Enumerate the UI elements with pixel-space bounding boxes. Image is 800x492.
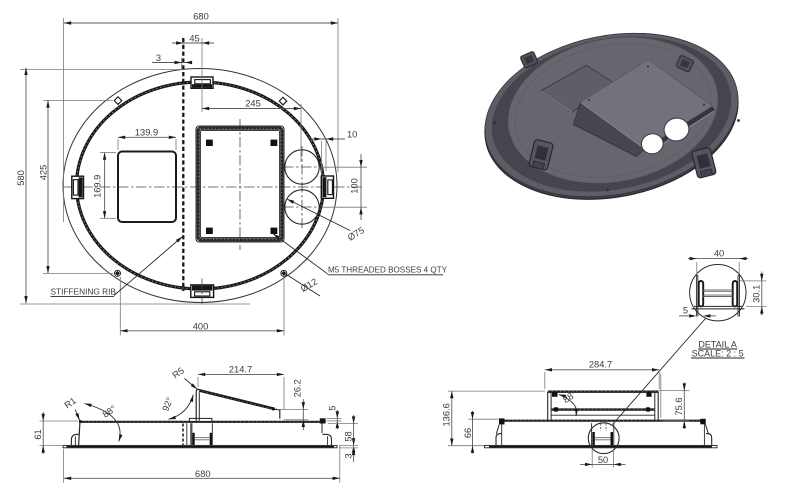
svg-text:40: 40 xyxy=(714,248,724,258)
svg-text:26.2: 26.2 xyxy=(293,379,303,397)
svg-text:SCALE: 2 : 5: SCALE: 2 : 5 xyxy=(692,348,744,358)
svg-text:50: 50 xyxy=(598,455,608,465)
svg-text:45: 45 xyxy=(189,33,199,43)
svg-text:680: 680 xyxy=(195,469,211,479)
svg-text:75.6: 75.6 xyxy=(674,397,684,415)
svg-text:169.9: 169.9 xyxy=(92,175,102,198)
svg-text:30.1: 30.1 xyxy=(752,285,762,303)
svg-text:5: 5 xyxy=(327,405,337,410)
svg-text:3: 3 xyxy=(344,453,354,458)
svg-text:284.7: 284.7 xyxy=(589,360,612,370)
svg-text:214.7: 214.7 xyxy=(229,364,252,374)
svg-text:61: 61 xyxy=(33,429,43,439)
svg-text:3: 3 xyxy=(156,53,161,63)
svg-text:STIFFENING RIB: STIFFENING RIB xyxy=(51,286,117,296)
svg-text:139.9: 139.9 xyxy=(135,127,158,137)
svg-text:136.6: 136.6 xyxy=(441,403,451,426)
svg-text:5: 5 xyxy=(683,306,688,316)
svg-text:58: 58 xyxy=(343,431,353,441)
svg-text:425: 425 xyxy=(38,165,48,181)
svg-text:100: 100 xyxy=(350,178,360,194)
svg-text:400: 400 xyxy=(193,322,209,332)
svg-text:66: 66 xyxy=(463,428,473,438)
svg-text:10: 10 xyxy=(347,129,357,139)
svg-text:M5 THREADED BOSSES 4 QTY: M5 THREADED BOSSES 4 QTY xyxy=(328,266,448,275)
svg-text:580: 580 xyxy=(16,170,26,186)
svg-text:245: 245 xyxy=(245,99,261,109)
svg-text:680: 680 xyxy=(193,12,209,22)
